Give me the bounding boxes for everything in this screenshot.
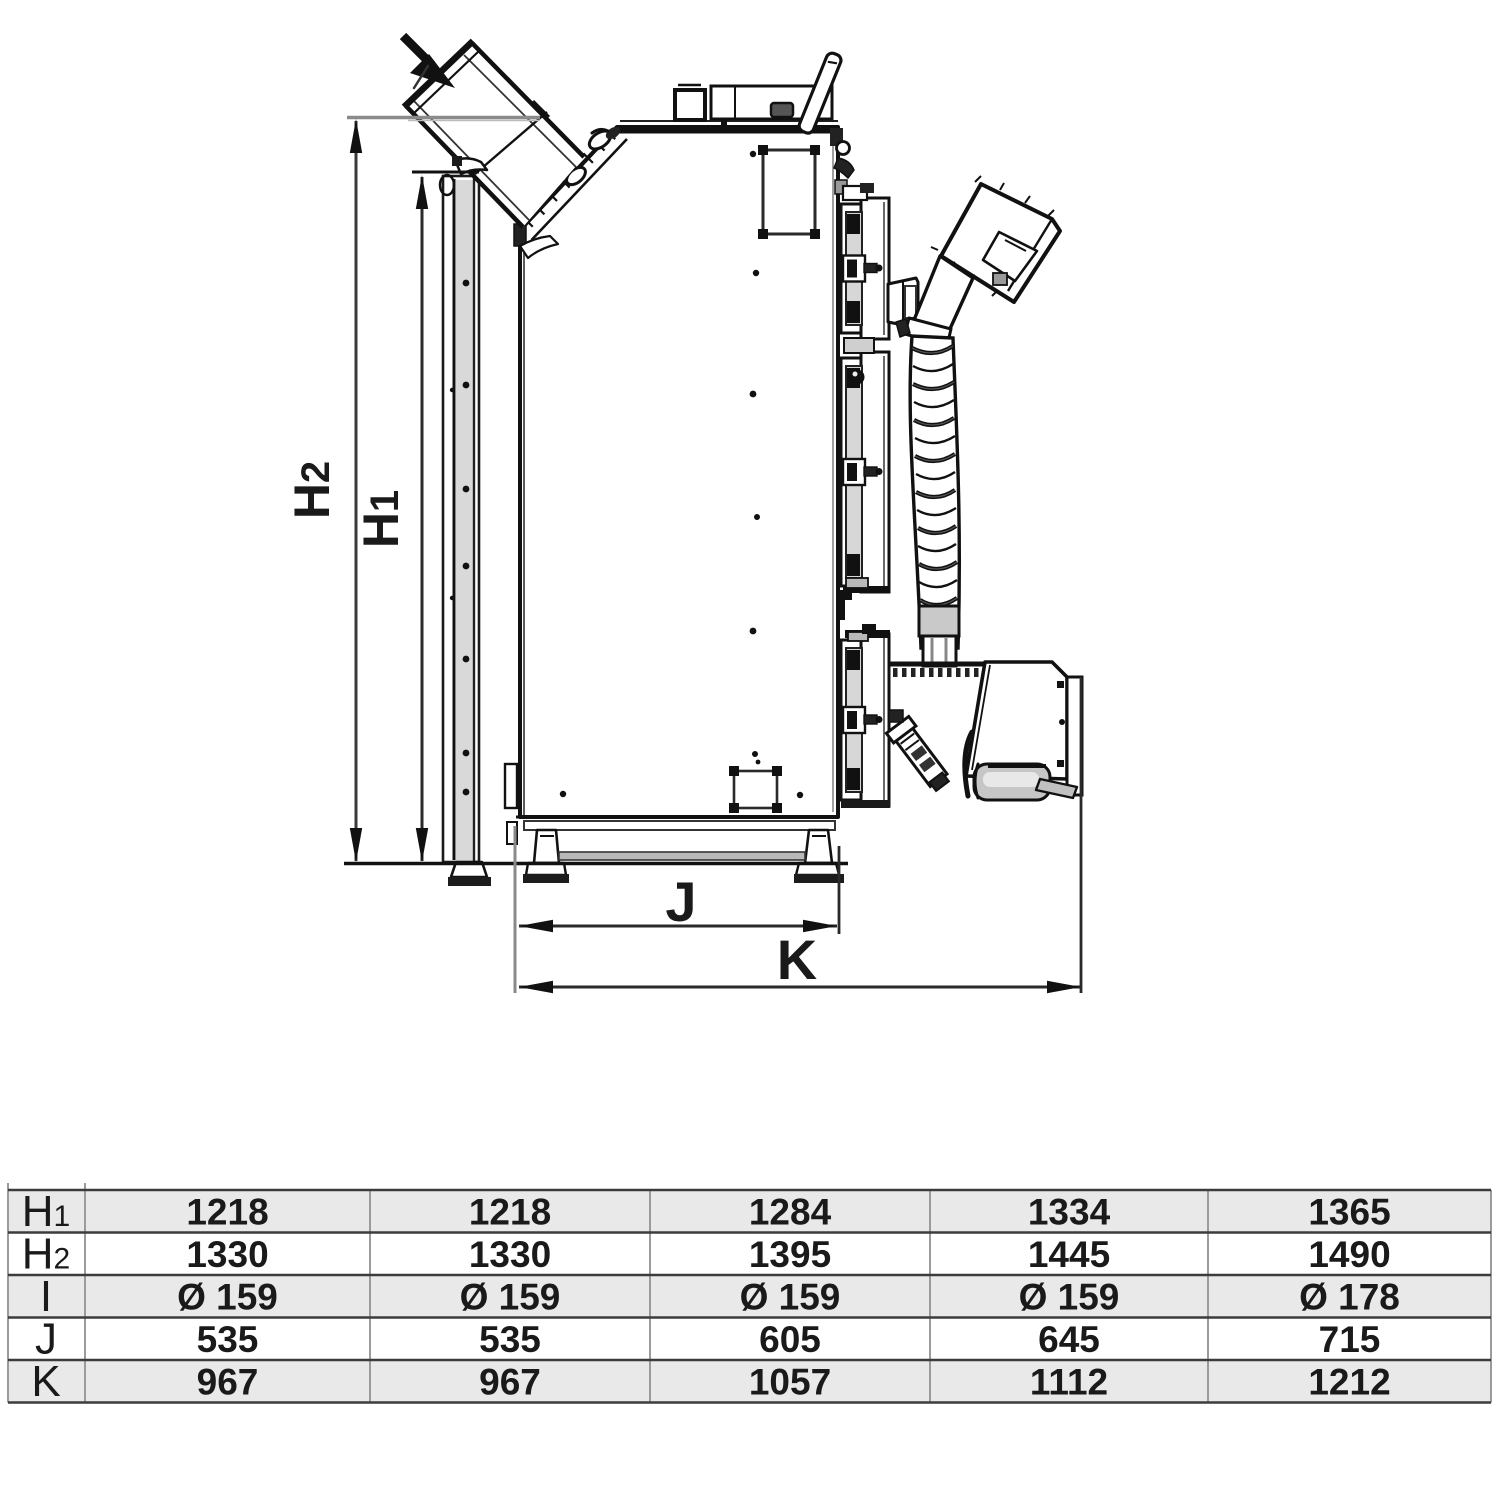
svg-text:1334: 1334: [1028, 1192, 1111, 1233]
svg-text:1330: 1330: [186, 1234, 268, 1275]
svg-text:1218: 1218: [186, 1192, 268, 1233]
svg-text:605: 605: [759, 1319, 821, 1360]
svg-text:Ø 159: Ø 159: [460, 1277, 561, 1318]
svg-text:1445: 1445: [1028, 1234, 1110, 1275]
svg-text:535: 535: [197, 1319, 259, 1360]
svg-text:K: K: [777, 928, 817, 991]
svg-text:1212: 1212: [1308, 1362, 1390, 1403]
svg-text:1218: 1218: [469, 1192, 551, 1233]
svg-text:967: 967: [479, 1362, 541, 1403]
svg-text:Ø 159: Ø 159: [740, 1277, 841, 1318]
svg-text:K: K: [31, 1357, 60, 1406]
svg-text:967: 967: [197, 1362, 259, 1403]
svg-text:715: 715: [1319, 1319, 1381, 1360]
svg-text:1057: 1057: [749, 1362, 831, 1403]
svg-text:1112: 1112: [1030, 1362, 1108, 1403]
svg-text:J: J: [665, 870, 696, 933]
svg-text:1284: 1284: [749, 1192, 832, 1233]
svg-text:535: 535: [479, 1319, 541, 1360]
svg-text:1395: 1395: [749, 1234, 831, 1275]
svg-text:Ø 159: Ø 159: [1019, 1277, 1120, 1318]
svg-text:Ø 159: Ø 159: [177, 1277, 278, 1318]
svg-text:1490: 1490: [1308, 1234, 1390, 1275]
svg-text:1330: 1330: [469, 1234, 551, 1275]
svg-text:Ø 178: Ø 178: [1299, 1277, 1400, 1318]
svg-text:1365: 1365: [1308, 1192, 1390, 1233]
svg-text:645: 645: [1038, 1319, 1100, 1360]
